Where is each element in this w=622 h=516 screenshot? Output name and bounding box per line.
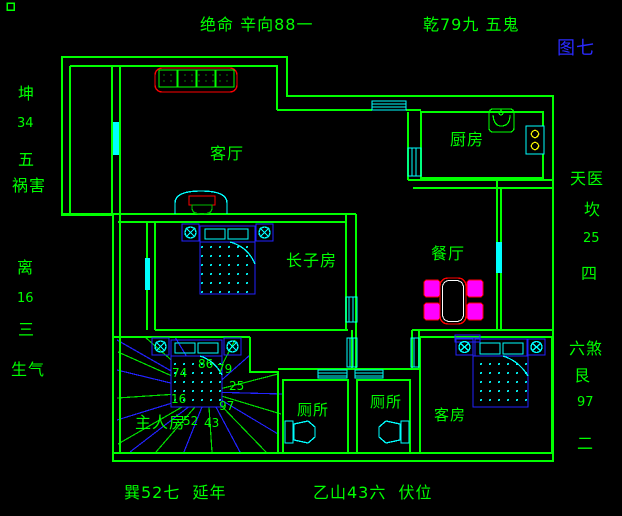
fan-number-52: 52 — [183, 415, 198, 428]
compass-label-san: 三 — [18, 321, 35, 339]
bedside-lamp-icon — [224, 338, 241, 355]
fan-number-97: 97 — [219, 400, 234, 413]
compass-label-gen: 艮 — [574, 367, 591, 385]
fan-number-25: 25 — [229, 380, 244, 393]
chair-icon — [424, 280, 440, 297]
bed-guest-icon — [456, 339, 545, 407]
compass-label-tianyi: 天医 — [570, 170, 604, 188]
bedside-lamp-icon — [152, 338, 169, 355]
toilet-left-icon — [285, 421, 315, 443]
bedside-lamp-icon — [256, 224, 273, 241]
window-toilet-left-icon — [318, 370, 347, 378]
chair-icon — [424, 303, 440, 320]
room-label-dining: 餐厅 — [431, 245, 465, 263]
compass-label-kan: 坎 — [584, 201, 601, 219]
compass-number-25: 25 — [583, 232, 600, 246]
fan-number-79: 79 — [217, 363, 232, 376]
dining-table-icon — [424, 278, 483, 324]
compass-label-er: 二 — [577, 435, 594, 453]
room-label-toilet-right: 厕所 — [370, 394, 402, 411]
compass-label-top: 绝命 辛向88一 — [200, 16, 313, 34]
floor-plan-screenshot: 绝命 辛向88一 乾79九 五鬼 图七 坤 34 五 祸害 离 16 三 生气 … — [0, 0, 622, 516]
door-eldest-son-left-icon — [145, 258, 150, 290]
room-label-guest: 客房 — [434, 407, 466, 424]
compass-label-huohai: 祸害 — [12, 177, 46, 195]
stove-icon — [526, 126, 544, 154]
door-living-left-icon — [113, 122, 119, 155]
compass-label-shengqi: 生气 — [11, 361, 45, 379]
bedside-lamp-icon — [528, 339, 545, 355]
chair-icon — [467, 280, 483, 297]
window-kitchen-left-icon — [408, 148, 421, 176]
room-label-toilet-left: 厕所 — [297, 402, 329, 419]
fan-number-74: 74 — [172, 367, 187, 380]
room-label-eldest-son: 长子房 — [286, 252, 337, 270]
room-label-living: 客厅 — [210, 145, 244, 163]
door-dining-right-icon — [496, 242, 502, 273]
compass-label-kun: 坤 — [18, 85, 35, 103]
bed-eldest-son-icon — [182, 224, 273, 294]
room-label-kitchen: 厨房 — [450, 131, 484, 149]
fan-number-16: 16 — [171, 393, 186, 406]
bedside-lamp-icon — [456, 339, 473, 355]
bedside-lamp-icon — [182, 224, 199, 241]
compass-label-bottom-right: 乙山43六 伏位 — [313, 484, 433, 502]
compass-number-97: 97 — [577, 396, 594, 410]
compass-label-si: 四 — [581, 265, 598, 283]
compass-label-li: 离 — [17, 259, 34, 277]
compass-label-top-right: 乾79九 五鬼 — [423, 16, 519, 34]
toilet-right-icon — [379, 421, 409, 443]
chair-icon — [467, 303, 483, 320]
compass-number-16: 16 — [17, 292, 34, 306]
compass-label-liusha: 六煞 — [569, 340, 603, 358]
grip-square-icon — [7, 3, 14, 10]
compass-label-bottom-left: 巽52七 延年 — [124, 484, 227, 502]
figure-number-label: 图七 — [557, 39, 595, 59]
fan-number-86: 86 — [198, 358, 213, 371]
compass-number-34: 34 — [17, 117, 34, 131]
room-label-master: 主人房 — [135, 414, 186, 432]
fan-number-43: 43 — [204, 417, 219, 430]
window-toilet-right-icon — [355, 370, 383, 378]
sofa-icon — [155, 68, 237, 92]
window-entry-top-icon — [372, 101, 406, 110]
armchair-icon — [175, 191, 227, 214]
compass-label-wu: 五 — [18, 151, 35, 169]
